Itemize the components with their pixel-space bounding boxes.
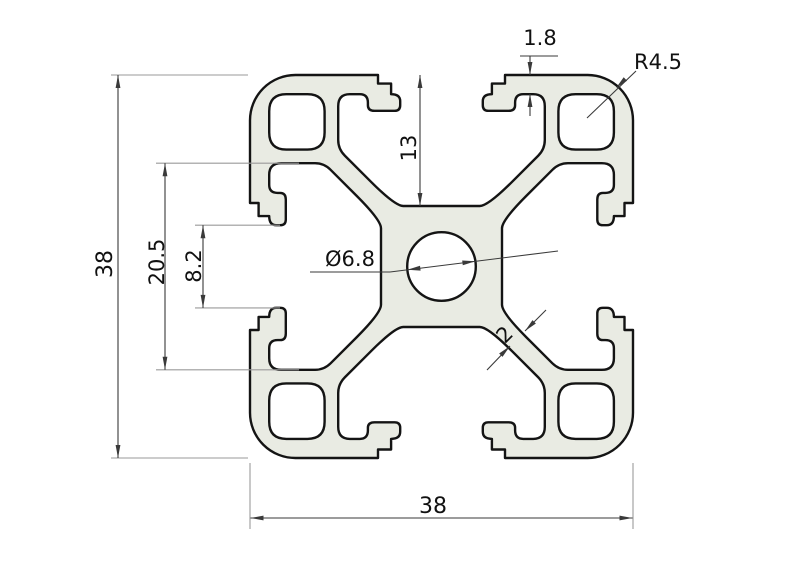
drawing-canvas: 38 20.5 8.2 13 1.8 R4.5 Ø6.8 2 38 [0,0,804,557]
dimension-arrowhead [418,193,423,206]
dim-label-corner-radius: R4.5 [634,50,682,74]
dim-label-center-hole-diameter: Ø6.8 [325,247,375,271]
dimension-arrowhead [616,77,627,88]
dimension-arrowhead [251,516,264,521]
dimension-arrowhead [528,94,533,107]
dim-label-overall-width: 38 [419,494,447,519]
dimension-arrowhead [163,163,168,176]
profile-cross-section [250,75,633,458]
dimension-arrowhead [116,445,121,458]
dimension-arrowhead [407,266,420,271]
dim-label-overall-height: 38 [93,250,118,278]
dimension-arrowhead [620,516,633,521]
dimension-arrowhead [116,75,121,88]
dimension-arrowhead [201,295,206,308]
technical-drawing: 38 20.5 8.2 13 1.8 R4.5 Ø6.8 2 38 [0,0,804,557]
dimension-arrowhead [163,357,168,370]
dim-label-slot-opening-width: 8.2 [182,249,206,282]
dimension-arrowhead [418,75,423,88]
dim-label-slot-channel-width: 20.5 [145,239,169,286]
dimension-arrowhead [462,261,475,266]
dimension-arrowhead [201,225,206,238]
dim-label-lip-thickness: 1.8 [523,26,556,50]
dim-label-slot-depth: 13 [397,135,421,162]
dimension-arrowhead [528,62,533,75]
